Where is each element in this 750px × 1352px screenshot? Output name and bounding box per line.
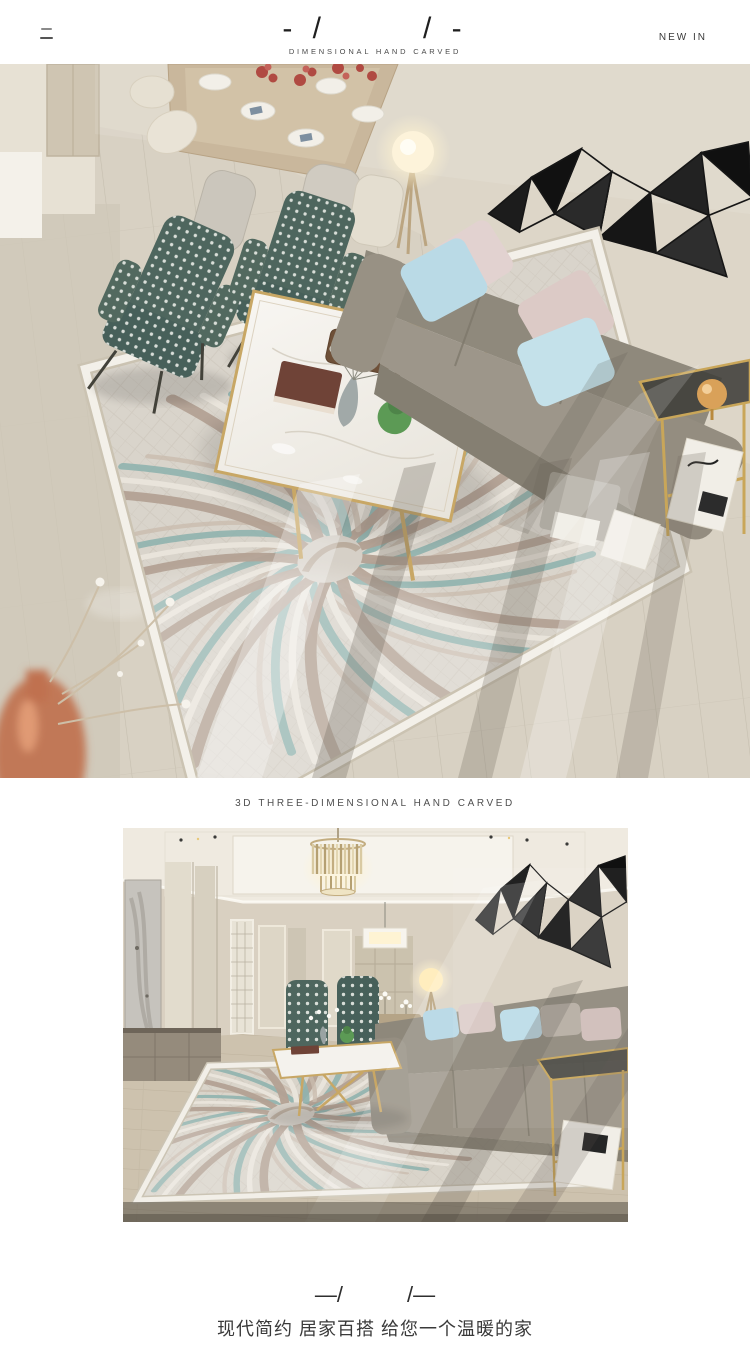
slash-mark-left: - / [282, 14, 327, 46]
product-detail-page: - / / - DIMENSIONAL HAND CARVED NEW IN [0, 0, 750, 1352]
product-photo-top-view[interactable] [0, 64, 750, 778]
photo-bottom-shadow [123, 1214, 628, 1222]
header-caption: DIMENSIONAL HAND CARVED [0, 47, 750, 56]
section-divider: 3D THREE-DIMENSIONAL HAND CARVED [0, 778, 750, 828]
footer: —/ /— 现代简约 居家百搭 给您一个温暖的家 [0, 1222, 750, 1352]
footer-slashes: —/ /— [0, 1222, 750, 1308]
section-caption: 3D THREE-DIMENSIONAL HAND CARVED [235, 798, 515, 809]
new-in-label[interactable]: NEW IN [659, 32, 707, 43]
header: - / / - DIMENSIONAL HAND CARVED NEW IN [0, 0, 750, 64]
product-photo-room-view[interactable] [123, 828, 628, 1222]
footer-slash-left: —/ [315, 1282, 343, 1308]
slash-mark-right: / - [423, 14, 468, 46]
footer-tagline: 现代简约 居家百搭 给您一个温暖的家 [0, 1315, 750, 1341]
header-title-block: - / / - DIMENSIONAL HAND CARVED [0, 0, 750, 56]
top-view-illustration [0, 64, 750, 778]
room-view-illustration [123, 828, 628, 1222]
footer-slash-right: /— [407, 1282, 435, 1308]
decorative-slashes: - / / - [0, 14, 750, 46]
